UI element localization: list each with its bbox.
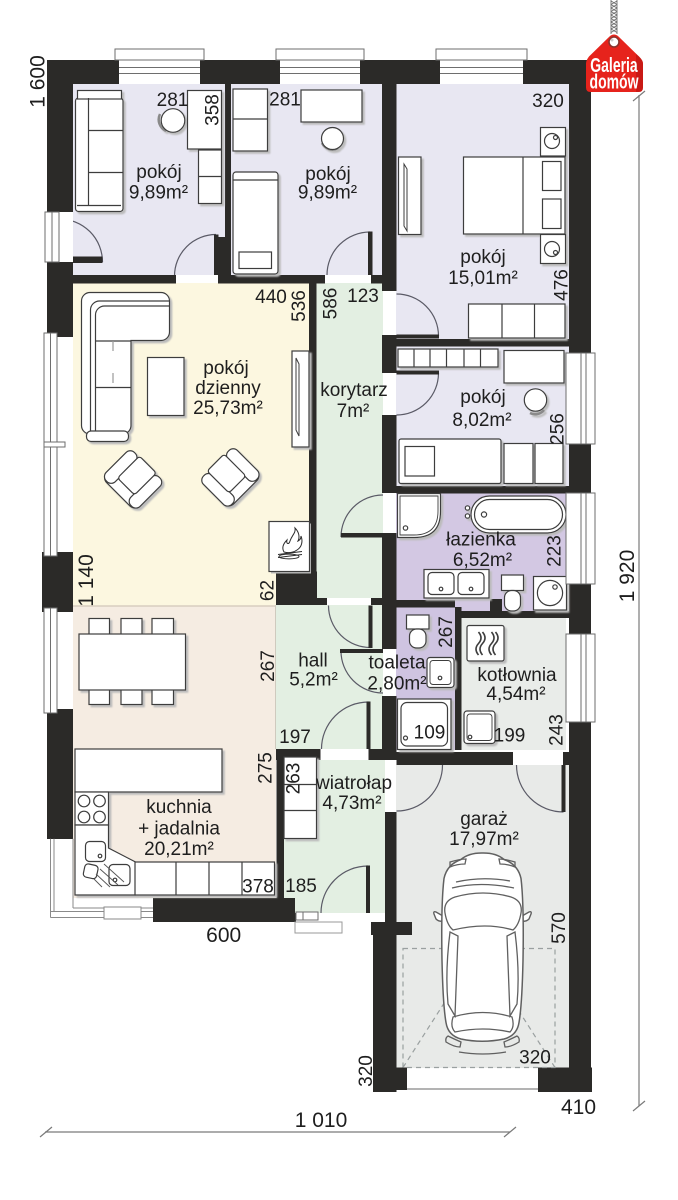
svg-text:267: 267	[436, 616, 457, 648]
svg-text:1 140: 1 140	[75, 554, 98, 607]
svg-text:320: 320	[356, 1055, 377, 1087]
svg-text:358: 358	[203, 94, 224, 126]
svg-text:pokój: pokój	[203, 358, 248, 379]
svg-text:199: 199	[494, 726, 526, 747]
svg-text:4,73m²: 4,73m²	[322, 793, 381, 814]
svg-text:320: 320	[519, 1048, 551, 1069]
svg-text:pokój: pokój	[136, 162, 181, 183]
svg-text:2,80m²: 2,80m²	[367, 674, 426, 695]
svg-text:9,89m²: 9,89m²	[298, 183, 357, 204]
svg-text:123: 123	[347, 286, 379, 307]
svg-text:6,52m²: 6,52m²	[453, 550, 512, 571]
svg-text:185: 185	[285, 876, 317, 897]
svg-text:wiatrołap: wiatrołap	[315, 773, 392, 794]
svg-text:256: 256	[548, 413, 569, 445]
svg-text:536: 536	[289, 290, 310, 322]
svg-text:320: 320	[532, 91, 564, 112]
svg-text:korytarz: korytarz	[320, 380, 388, 401]
svg-text:17,97m²: 17,97m²	[449, 829, 519, 850]
svg-text:281: 281	[157, 90, 189, 111]
svg-text:kuchnia: kuchnia	[146, 797, 212, 818]
svg-text:586: 586	[321, 288, 342, 320]
svg-text:62: 62	[258, 580, 279, 601]
svg-text:5,2m²: 5,2m²	[289, 670, 338, 691]
svg-text:109: 109	[414, 723, 446, 744]
svg-text:20,21m²: 20,21m²	[144, 839, 214, 860]
svg-text:600: 600	[206, 924, 241, 947]
svg-text:243: 243	[547, 714, 568, 746]
svg-text:281: 281	[269, 90, 301, 111]
svg-text:440: 440	[255, 287, 287, 308]
svg-text:kotłownia: kotłownia	[477, 665, 557, 686]
svg-text:267: 267	[258, 650, 279, 682]
svg-text:łazienka: łazienka	[446, 530, 516, 551]
svg-text:domów: domów	[590, 70, 639, 93]
svg-text:4,54m²: 4,54m²	[486, 684, 545, 705]
svg-text:197: 197	[279, 727, 311, 748]
svg-text:hall: hall	[298, 651, 328, 672]
svg-text:1 920: 1 920	[616, 550, 639, 603]
svg-text:263: 263	[284, 763, 305, 795]
svg-text:1 600: 1 600	[27, 55, 50, 108]
svg-text:+ jadalnia: + jadalnia	[138, 819, 220, 840]
svg-text:25,73m²: 25,73m²	[193, 398, 263, 419]
svg-text:275: 275	[256, 752, 277, 784]
svg-text:7m²: 7m²	[337, 401, 370, 422]
svg-text:223: 223	[545, 535, 566, 567]
svg-text:378: 378	[242, 877, 274, 898]
svg-text:570: 570	[549, 912, 570, 944]
svg-text:1 010: 1 010	[295, 1109, 348, 1132]
svg-text:toaleta: toaleta	[368, 653, 425, 674]
svg-text:9,89m²: 9,89m²	[129, 183, 188, 204]
svg-text:dzienny: dzienny	[195, 378, 261, 399]
svg-text:pokój: pokój	[460, 247, 505, 268]
svg-text:8,02m²: 8,02m²	[452, 410, 511, 431]
svg-text:15,01m²: 15,01m²	[448, 268, 518, 289]
svg-text:garaż: garaż	[460, 809, 508, 830]
svg-text:pokój: pokój	[460, 387, 505, 408]
svg-text:476: 476	[552, 269, 573, 301]
svg-text:410: 410	[561, 1096, 596, 1119]
